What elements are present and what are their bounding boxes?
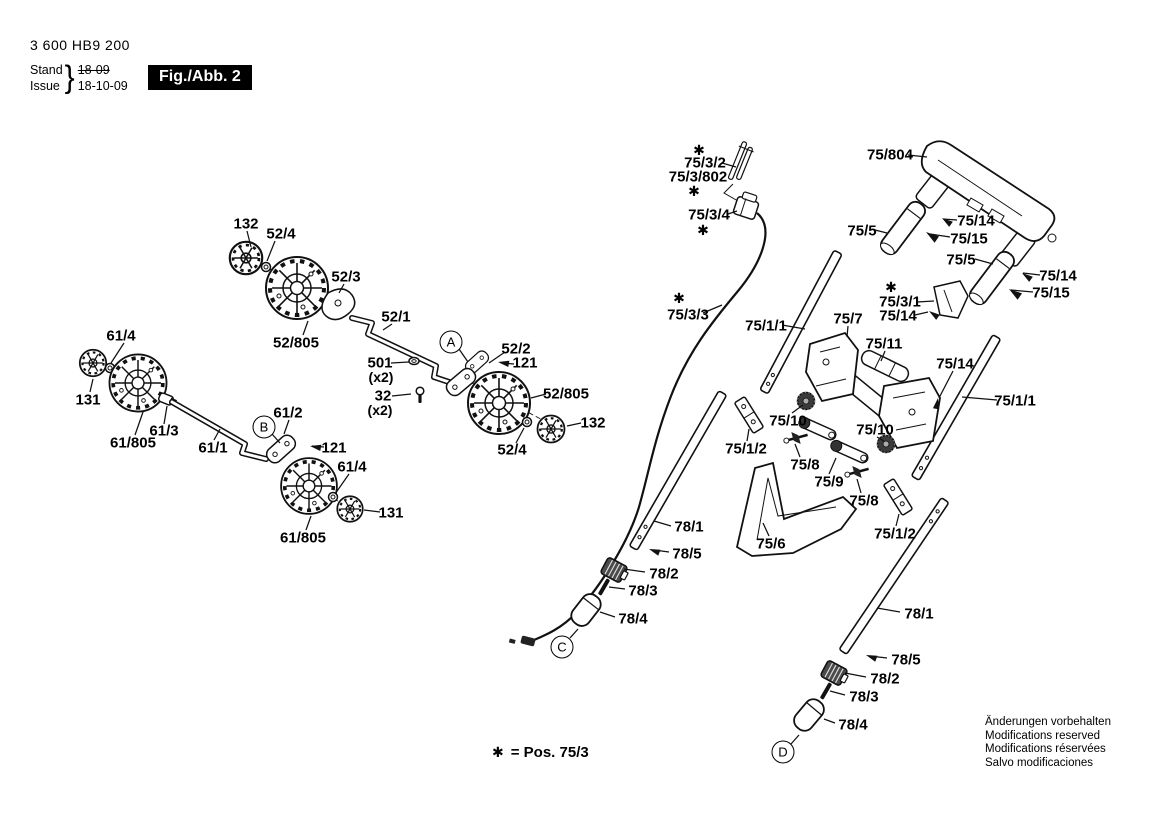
part-label-78-5: 78/5 <box>891 653 920 668</box>
part-label-75-8: 75/8 <box>849 494 878 509</box>
part-label-61-3: 61/3 <box>149 424 178 439</box>
part-label-75-14: 75/14 <box>936 357 974 372</box>
footnote-text: = Pos. 75/3 <box>511 744 589 761</box>
legal-line-de: Änderungen vorbehalten <box>985 716 1111 730</box>
part-label-52-805: 52/805 <box>273 336 319 351</box>
part-label-121: 121 <box>512 356 537 371</box>
part-label-78-2: 78/2 <box>870 672 899 687</box>
part-label-131: 131 <box>378 506 403 521</box>
part-label-78-1: 78/1 <box>674 520 703 535</box>
reference-circle-B: B <box>253 416 276 439</box>
part-label-78-3: 78/3 <box>628 584 657 599</box>
part-label-75-5: 75/5 <box>946 253 975 268</box>
part-label-75-6: 75/6 <box>756 537 785 552</box>
part-label-132: 132 <box>580 416 605 431</box>
part-label-61-2: 61/2 <box>273 406 302 421</box>
part-label-78-1: 78/1 <box>904 607 933 622</box>
reference-circle-C: C <box>551 636 574 659</box>
part-label-78-5: 78/5 <box>672 547 701 562</box>
part-label-52-4: 52/4 <box>266 227 295 242</box>
part-label-75-8: 75/8 <box>790 458 819 473</box>
part-label-78-3: 78/3 <box>849 690 878 705</box>
legal-line-en: Modifications reserved <box>985 730 1111 744</box>
part-label-75-1-2: 75/1/2 <box>874 527 916 542</box>
part-label-75-11: 75/11 <box>866 337 903 352</box>
label-layer: 13252/452/352/152/80561/413161/80561/361… <box>0 0 1169 826</box>
part-label-52-3: 52/3 <box>331 270 360 285</box>
part-label-75-10: 75/10 <box>856 423 894 438</box>
part-label-75-10: 75/10 <box>769 414 807 429</box>
part-label-75-804: 75/804 <box>867 148 913 163</box>
part-label-75-5: 75/5 <box>847 224 876 239</box>
part-label-75-1-1: 75/1/1 <box>745 319 787 334</box>
part-label-52-4: 52/4 <box>497 443 526 458</box>
part-label-75-7: 75/7 <box>833 312 862 327</box>
part-label-75-3-4: 75/3/4 <box>688 208 730 223</box>
reference-circle-A: A <box>440 331 463 354</box>
part-label-52-805: 52/805 <box>543 387 589 402</box>
legal-notice: Änderungen vorbehalten Modifications res… <box>985 716 1111 770</box>
part-label-61-4: 61/4 <box>337 460 366 475</box>
part-label-75-14: 75/14 <box>879 309 917 324</box>
part-label-75-1-1: 75/1/1 <box>994 394 1036 409</box>
footnote-star: ✱ <box>492 744 504 761</box>
part-label-61-4: 61/4 <box>106 329 135 344</box>
part-label-52-1: 52/1 <box>381 310 410 325</box>
part-label-75-14: 75/14 <box>1039 269 1077 284</box>
legal-line-fr: Modifications réservées <box>985 743 1111 757</box>
footnote: ✱ = Pos. 75/3 <box>492 744 589 761</box>
part-label--x2-: (x2) <box>369 370 394 384</box>
part-label-61-1: 61/1 <box>198 441 227 456</box>
star-marker: ✱ <box>673 291 685 305</box>
part-label-61-805: 61/805 <box>280 531 326 546</box>
part-label-78-4: 78/4 <box>618 612 647 627</box>
part-label-75-15: 75/15 <box>950 232 988 247</box>
star-marker: ✱ <box>697 223 709 237</box>
part-label-75-9: 75/9 <box>814 475 843 490</box>
part-label-78-2: 78/2 <box>649 567 678 582</box>
part-label-78-4: 78/4 <box>838 718 867 733</box>
star-marker: ✱ <box>688 184 700 198</box>
part-label-121: 121 <box>321 441 346 456</box>
part-label-75-3-3: 75/3/3 <box>667 308 709 323</box>
legal-line-es: Salvo modificaciones <box>985 757 1111 771</box>
star-marker: ✱ <box>885 280 897 294</box>
part-label--x2-: (x2) <box>368 403 393 417</box>
parts-diagram-page: 3 600 HB9 200 Stand Issue } 18-09 18-10-… <box>0 0 1169 826</box>
part-label-131: 131 <box>75 393 100 408</box>
reference-circle-D: D <box>772 741 795 764</box>
part-label-75-1-2: 75/1/2 <box>725 442 767 457</box>
part-label-75-14: 75/14 <box>957 214 995 229</box>
part-label-132: 132 <box>233 217 258 232</box>
part-label-75-15: 75/15 <box>1032 286 1070 301</box>
